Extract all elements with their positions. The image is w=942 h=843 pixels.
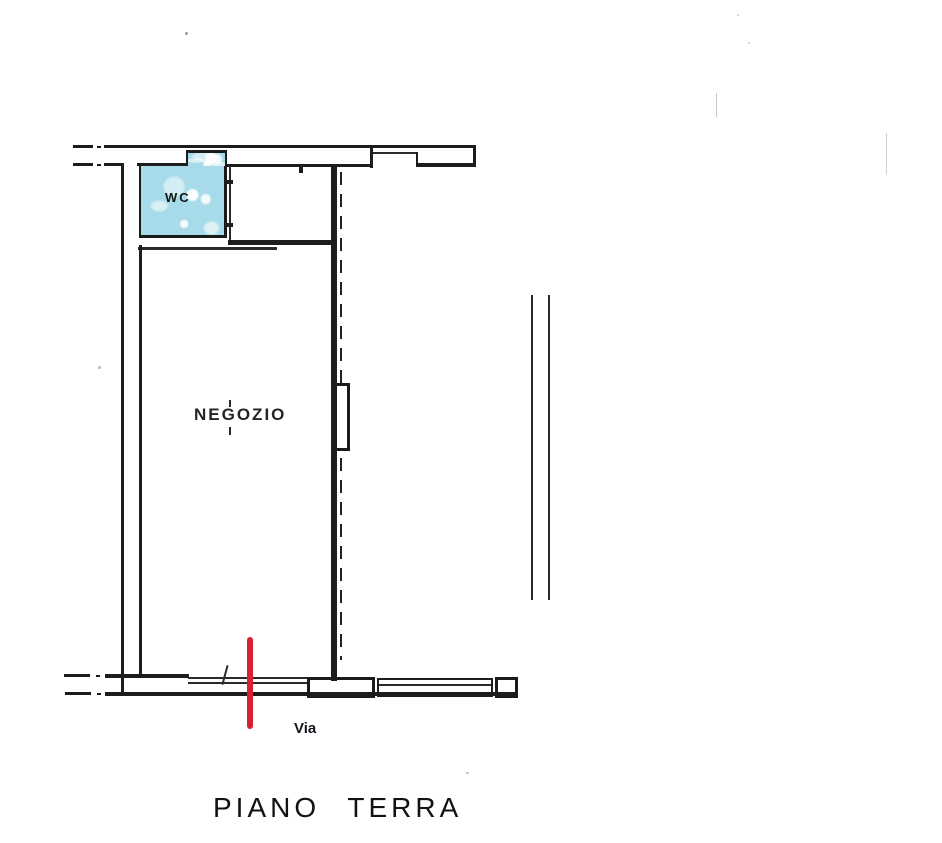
wall-break-dash-icon xyxy=(73,163,93,166)
wall-left-inner-face xyxy=(139,245,142,677)
floor-plan-canvas: WC NEGOZIO Via PIANO TERRA xyxy=(0,0,942,843)
window-frame xyxy=(377,678,493,697)
wall-break-dot-icon xyxy=(96,675,100,677)
wall-break-dash-icon xyxy=(65,692,91,695)
shop-top-wall-inner-line xyxy=(138,247,277,250)
wall-break-dash-icon xyxy=(73,145,93,148)
window-jamb xyxy=(370,145,373,168)
wall-top-outer-face xyxy=(104,145,476,148)
scan-artifact xyxy=(748,42,750,44)
wall-break-dash-icon xyxy=(64,674,90,677)
wall-break-dot-icon xyxy=(97,164,101,166)
window-top-line xyxy=(372,152,418,154)
door-jamb-tick xyxy=(226,180,233,184)
center-tick xyxy=(229,427,231,435)
window-inner-line xyxy=(379,684,491,686)
street-label: Via xyxy=(294,720,316,737)
wc-room-niche xyxy=(186,150,227,166)
wall-break-dot-icon xyxy=(97,693,101,695)
wall-top-inner-face-right xyxy=(418,163,475,167)
wall-break-dot-icon xyxy=(97,146,101,148)
entrance-pier-block xyxy=(307,677,375,698)
entrance-marker-red-line xyxy=(247,637,253,729)
plan-title: PIANO TERRA xyxy=(213,792,462,824)
wall-bottom-outer-face xyxy=(105,674,189,678)
wc-room: WC xyxy=(139,166,227,238)
column-block xyxy=(334,383,350,451)
anteroom-bottom-wall xyxy=(228,240,336,245)
scan-artifact xyxy=(886,133,887,175)
door-jamb-tick xyxy=(226,223,233,227)
wall-top-end-cap xyxy=(473,145,476,167)
scan-artifact xyxy=(716,93,717,117)
wall-end-block xyxy=(495,677,518,698)
adjacent-wall-line xyxy=(531,295,533,600)
anteroom-left-wall xyxy=(229,166,231,240)
adjacent-wall-line xyxy=(548,295,550,600)
center-tick xyxy=(229,400,231,407)
scan-artifact xyxy=(185,32,188,35)
scan-artifact xyxy=(98,366,101,369)
wall-left-outer-face xyxy=(121,164,124,694)
scan-artifact xyxy=(466,772,469,774)
shop-room-label: NEGOZIO xyxy=(194,405,286,425)
wc-room-label: WC xyxy=(165,190,191,205)
door-jamb-tick xyxy=(299,166,303,173)
scan-artifact xyxy=(737,14,739,16)
